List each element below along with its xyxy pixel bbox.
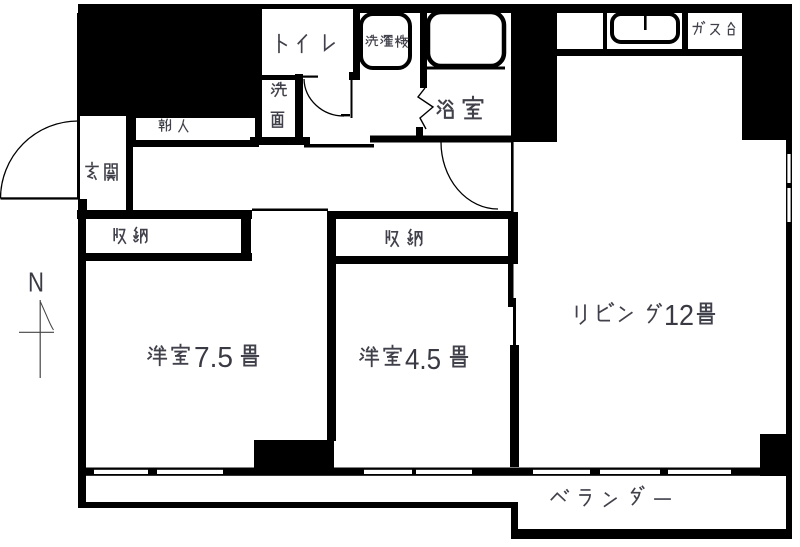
svg-text:7.5: 7.5 <box>194 342 233 374</box>
svg-text:4.5: 4.5 <box>405 344 441 376</box>
svg-text:12: 12 <box>664 300 694 332</box>
svg-text:N: N <box>28 267 44 298</box>
